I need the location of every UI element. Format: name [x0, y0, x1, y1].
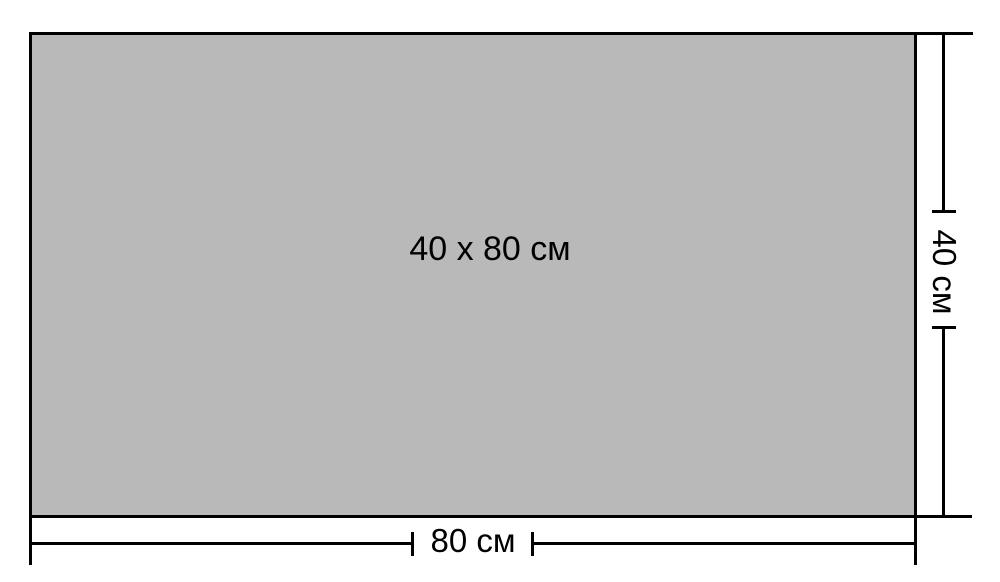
height-dimension-line-bottom [942, 329, 945, 517]
height-dimension-line-top [942, 33, 945, 212]
dimension-diagram: 40 x 80 см 80 см 40 см [0, 0, 1000, 582]
width-dimension-line-right [533, 542, 916, 545]
rectangle-fill [32, 35, 914, 515]
width-dimension-label: 80 см [413, 524, 533, 558]
width-dimension-line-left [30, 542, 413, 545]
rectangle-bottom-edge-line [29, 515, 972, 518]
rectangle-left-edge-line [29, 32, 32, 565]
rectangle-right-edge-line [914, 32, 917, 565]
size-label: 40 x 80 см [340, 231, 640, 267]
height-dimension-label: 40 см [925, 212, 963, 332]
rectangle-top-edge-line [29, 32, 973, 35]
